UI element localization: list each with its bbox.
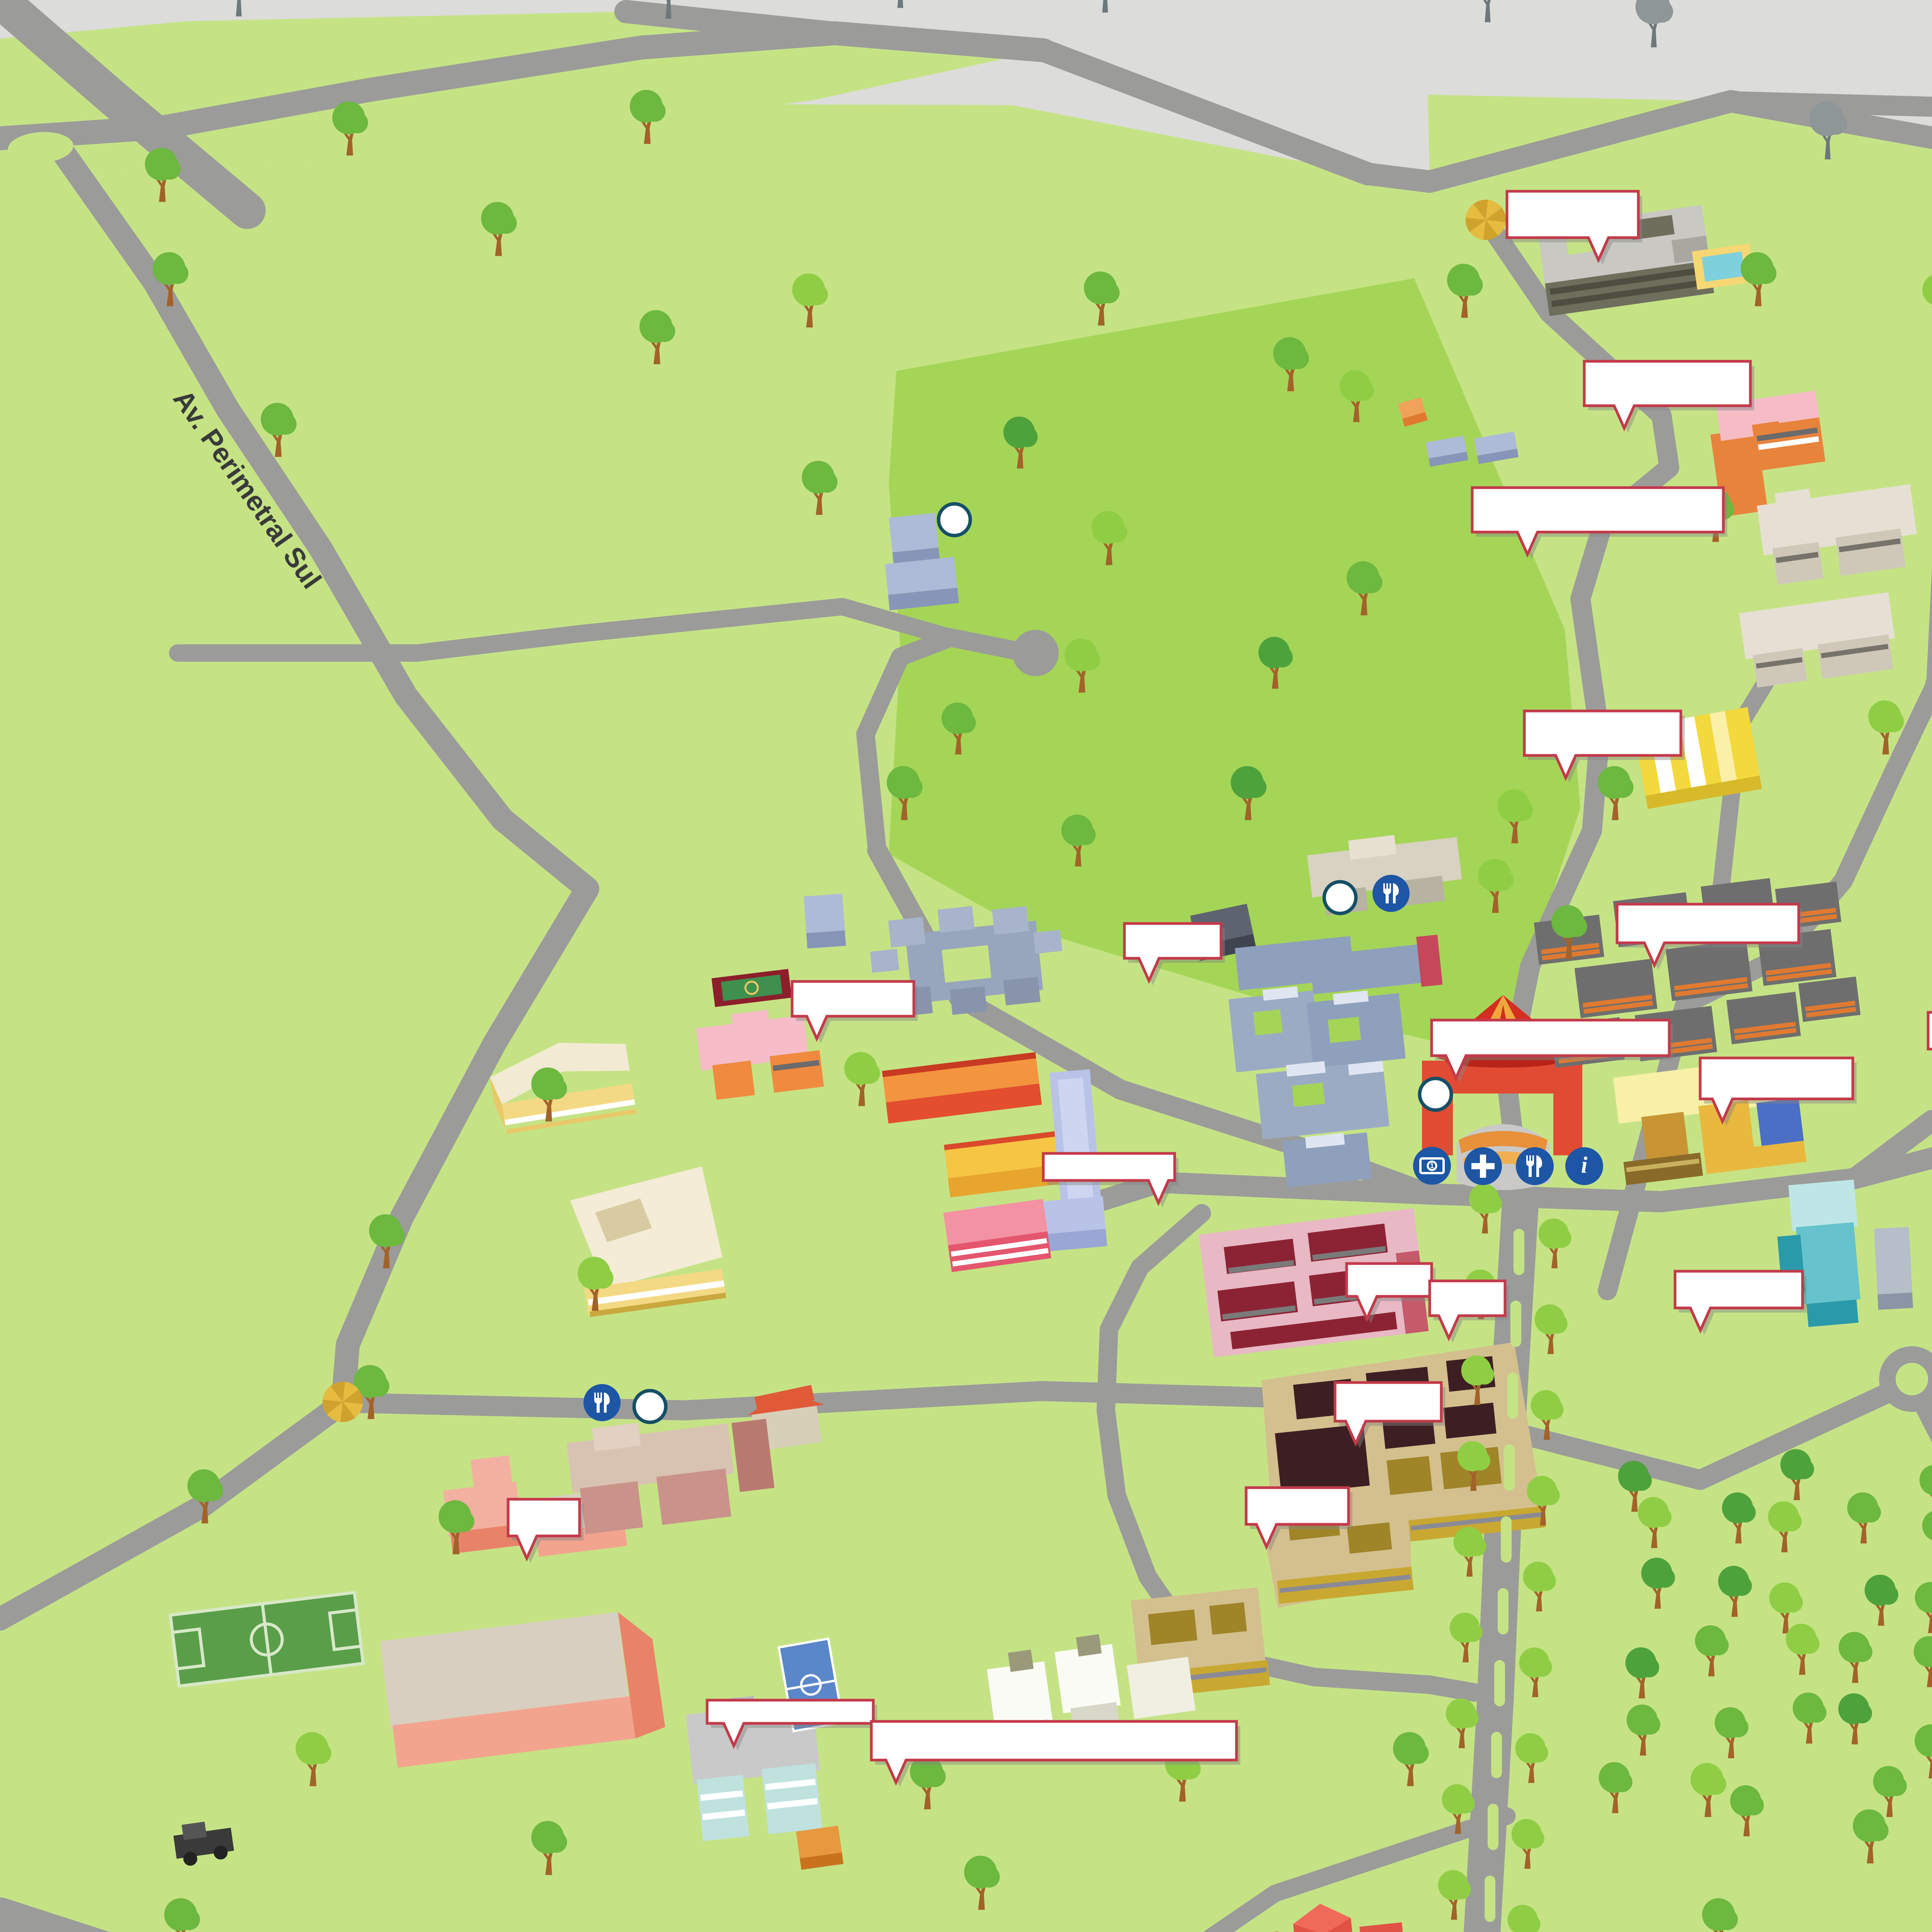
svg-text:i: i bbox=[1581, 1152, 1588, 1178]
svg-text:1: 1 bbox=[1430, 1162, 1434, 1170]
